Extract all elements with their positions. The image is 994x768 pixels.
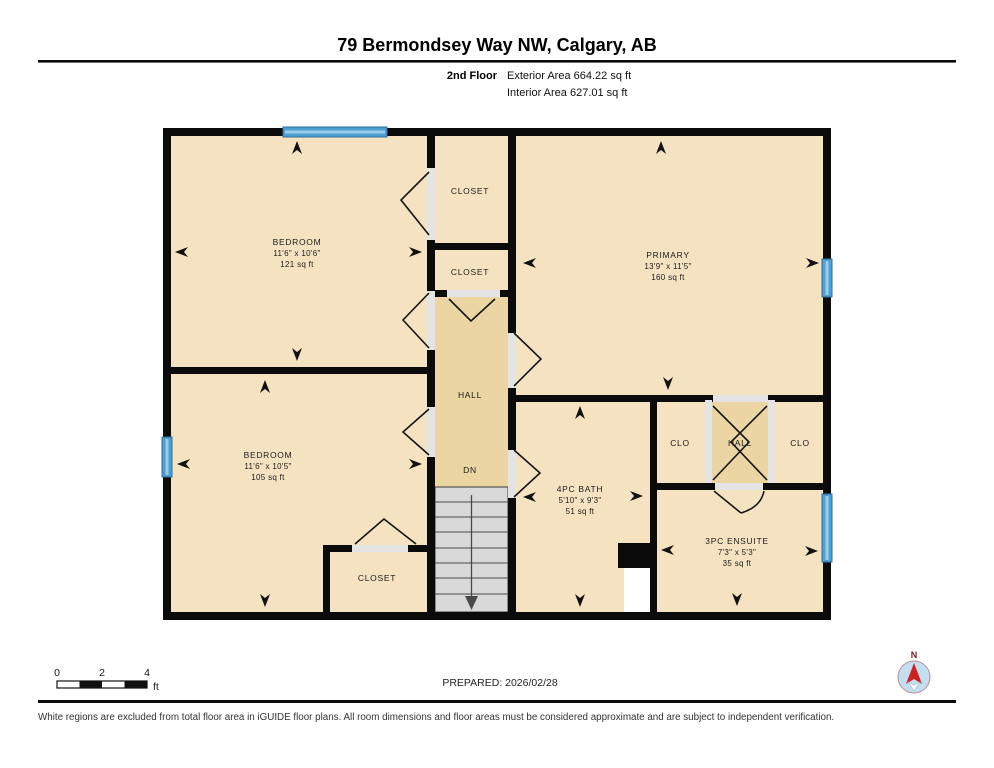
page-title: 79 Bermondsey Way NW, Calgary, AB <box>337 35 656 55</box>
room-label-closet-top: CLOSET <box>451 186 489 196</box>
room-label-hall-small: HALL <box>728 438 752 448</box>
room-label-clo-right: CLO <box>790 438 810 448</box>
header-divider <box>38 60 956 63</box>
room-dims: 5'10" x 9'3" <box>558 496 601 505</box>
room-name: BEDROOM <box>244 450 293 460</box>
room-area: 51 sq ft <box>566 507 595 516</box>
scale-tick-2: 2 <box>99 667 105 679</box>
room-dims: 7'3" x 5'3" <box>718 548 756 557</box>
room-dims: 11'6" x 10'6" <box>273 249 320 258</box>
scale-tick-0: 0 <box>54 667 60 679</box>
window-left-icon <box>162 437 172 477</box>
room-label-primary: PRIMARY 13'9" x 11'5" 160 sq ft <box>644 250 691 282</box>
window-top-icon <box>283 127 387 137</box>
room-name: 3PC ENSUITE <box>705 536 768 546</box>
window-right-primary-icon <box>822 259 832 297</box>
room-dims: 13'9" x 11'5" <box>644 262 691 271</box>
interior-area-label: Interior Area 627.01 sq ft <box>507 87 627 99</box>
floor-plan-page: 79 Bermondsey Way NW, Calgary, AB 2nd Fl… <box>0 0 994 768</box>
staircase <box>435 487 508 612</box>
prepared-date: PREPARED: 2026/02/28 <box>442 677 558 689</box>
room-label-closet-bottom: CLOSET <box>358 573 396 583</box>
stairs-dn-label: DN <box>463 465 477 475</box>
room-label-closet-mid: CLOSET <box>451 267 489 277</box>
room-name: BEDROOM <box>273 237 322 247</box>
scale-bar: 0 2 4 ft <box>54 667 159 693</box>
room-name: PRIMARY <box>646 250 689 260</box>
scale-unit-label: ft <box>153 681 159 693</box>
room-area: 35 sq ft <box>723 559 752 568</box>
room-area: 160 sq ft <box>651 273 685 282</box>
scale-tick-4: 4 <box>144 667 150 679</box>
room-label-clo-left: CLO <box>670 438 690 448</box>
disclaimer: White regions are excluded from total fl… <box>38 712 834 723</box>
excluded-white-region <box>624 566 650 612</box>
exterior-area-label: Exterior Area 664.22 sq ft <box>507 70 631 82</box>
room-name: 4PC BATH <box>557 484 604 494</box>
room-area: 121 sq ft <box>280 260 314 269</box>
floor-plan-canvas: 79 Bermondsey Way NW, Calgary, AB 2nd Fl… <box>0 0 994 768</box>
room-label-hall: HALL <box>458 390 482 400</box>
floor-label: 2nd Floor <box>447 70 498 82</box>
compass-icon: N <box>898 650 930 693</box>
room-dims: 11'6" x 10'5" <box>244 462 291 471</box>
compass-north-label: N <box>911 650 918 660</box>
room-area: 105 sq ft <box>251 473 285 482</box>
window-right-ensuite-icon <box>822 494 832 562</box>
footer-divider <box>38 700 956 703</box>
floorplan: BEDROOM 11'6" x 10'6" 121 sq ft CLOSET C… <box>162 127 832 620</box>
